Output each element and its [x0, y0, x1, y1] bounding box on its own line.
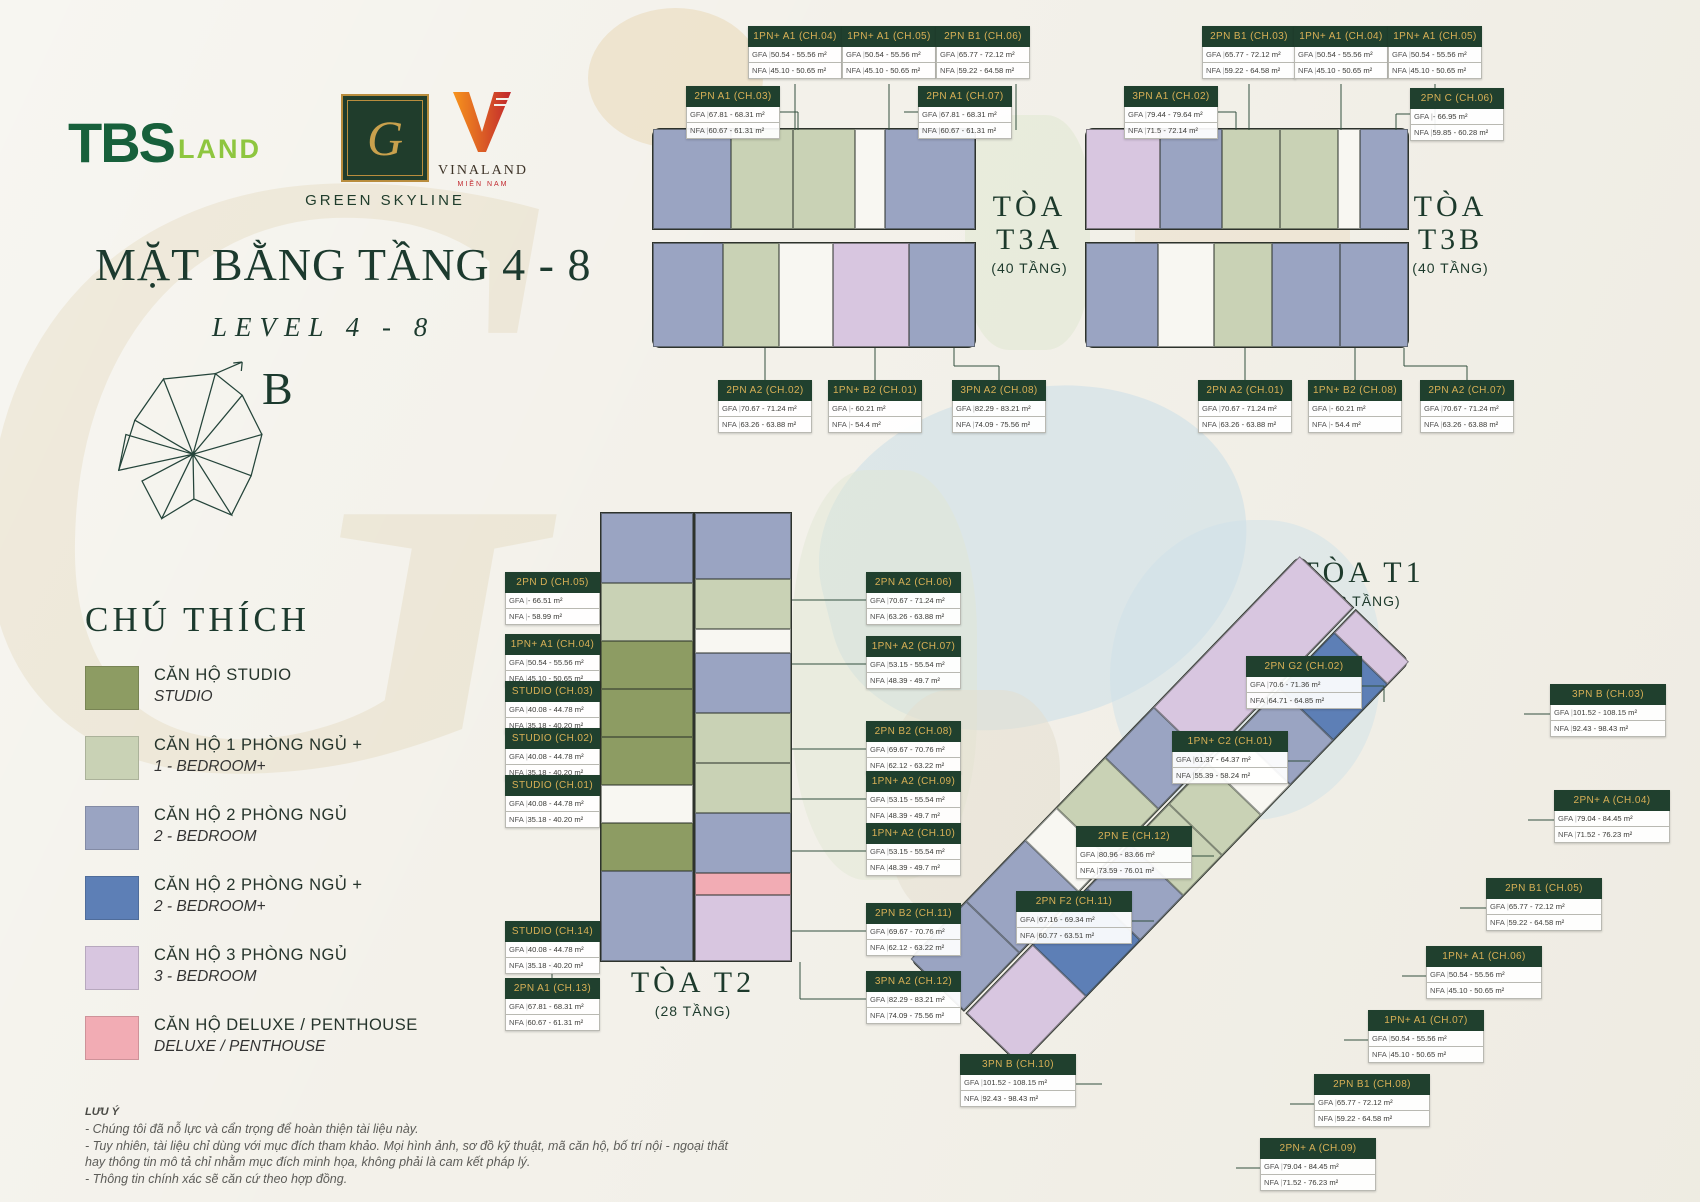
area-label: GFA: [1318, 1098, 1337, 1107]
green-skyline-label: GREEN SKYLINE: [300, 192, 470, 209]
unit-code: 2PN A1 (CH.07): [918, 86, 1012, 107]
unit-nfa-row: NFA59.22 - 64.58 m²: [936, 63, 1030, 79]
unit-gfa-row: GFA- 60.21 m²: [1308, 401, 1402, 417]
unit-nfa-row: NFA73.59 - 76.01 m²: [1076, 863, 1192, 879]
unit-badge: 2PN D (CH.05)GFA- 66.51 m²NFA- 58.99 m²: [505, 572, 600, 625]
unit-badge: STUDIO (CH.14)GFA40.08 - 44.78 m²NFA35.1…: [505, 921, 600, 974]
area-label: NFA: [870, 811, 888, 820]
unit-code: 1PN+ A1 (CH.07): [1368, 1010, 1484, 1031]
area-label: NFA: [752, 66, 770, 75]
unit-badge: 2PN B2 (CH.11)GFA69.67 - 70.76 m²NFA62.1…: [866, 903, 961, 956]
legend-label-en: 2 - BEDROOM+: [154, 898, 363, 916]
plan-unit-br1: [695, 713, 791, 763]
plan-unit-br2: [653, 129, 731, 229]
plan-unit-br1: [793, 129, 855, 229]
vinaland-v-icon: [451, 92, 515, 152]
legend-label-vi: CĂN HỘ DELUXE / PENTHOUSE: [154, 1016, 418, 1035]
area-label: NFA: [832, 420, 850, 429]
unit-nfa-row: NFA71.5 - 72.14 m²: [1124, 123, 1218, 139]
unit-code: 3PN B (CH.03): [1550, 684, 1666, 705]
unit-gfa-row: GFA50.54 - 55.56 m²: [748, 47, 842, 63]
area-label: NFA: [690, 126, 708, 135]
unit-code: 1PN+ A1 (CH.05): [842, 26, 936, 47]
plan-unit-br2: [1272, 243, 1340, 347]
area-label: GFA: [1298, 50, 1317, 59]
unit-gfa-row: GFA- 66.95 m²: [1410, 109, 1504, 125]
area-label: NFA: [1312, 420, 1330, 429]
legend-label-en: STUDIO: [154, 688, 292, 706]
area-value: 70.6 - 71.36 m²: [1269, 680, 1321, 689]
plan-unit-br2: [601, 871, 693, 961]
unit-nfa-row: NFA59.22 - 64.58 m²: [1314, 1111, 1430, 1127]
unit-badge: 1PN+ A2 (CH.07)GFA53.15 - 55.54 m²NFA48.…: [866, 636, 961, 689]
area-label: NFA: [870, 943, 888, 952]
plan-unit-studio: [601, 737, 693, 785]
unit-nfa-row: NFA92.43 - 98.43 m²: [1550, 721, 1666, 737]
area-value: 59.85 - 60.28 m²: [1432, 128, 1488, 137]
area-value: 45.10 - 50.65 m²: [1390, 1050, 1446, 1059]
area-value: - 66.51 m²: [528, 596, 563, 605]
area-value: 45.10 - 50.65 m²: [1316, 66, 1372, 75]
legend-item: CĂN HỘ 2 PHÒNG NGỦ2 - BEDROOM: [85, 806, 445, 850]
unit-gfa-row: GFA40.08 - 44.78 m²: [505, 749, 600, 765]
area-label: NFA: [1558, 830, 1576, 839]
unit-badge: 2PN A2 (CH.01)GFA70.67 - 71.24 m²NFA63.2…: [1198, 380, 1292, 433]
vinaland-label: VINALAND: [428, 163, 538, 179]
plan-unit-studio: [601, 641, 693, 689]
unit-nfa-row: NFA55.39 - 58.24 m²: [1172, 768, 1288, 784]
legend-item: CĂN HỘ 1 PHÒNG NGỦ +1 - BEDROOM+: [85, 736, 445, 780]
legend-item: CĂN HỘ STUDIOSTUDIO: [85, 666, 445, 710]
unit-badge: 1PN+ B2 (CH.01)GFA- 60.21 m²NFA- 54.4 m²: [828, 380, 922, 433]
unit-badge: 2PN B1 (CH.06)GFA65.77 - 72.12 m²NFA59.2…: [936, 26, 1030, 79]
tower-plan-t3b: [1085, 128, 1409, 348]
area-value: 74.09 - 75.56 m²: [888, 1011, 944, 1020]
unit-code: 1PN+ A2 (CH.07): [866, 636, 961, 657]
unit-code: 2PN+ A (CH.09): [1260, 1138, 1376, 1159]
area-value: 92.43 - 98.43 m²: [1572, 724, 1628, 733]
plan-unit-br2: [695, 813, 791, 873]
area-value: 61.37 - 64.37 m²: [1195, 755, 1251, 764]
unit-nfa-row: NFA35.18 - 40.20 m²: [505, 958, 600, 974]
unit-nfa-row: NFA- 58.99 m²: [505, 609, 600, 625]
area-value: - 60.21 m²: [851, 404, 886, 413]
area-label: GFA: [870, 660, 889, 669]
plan-unit-br1: [723, 243, 779, 347]
unit-badge: 2PN C (CH.06)GFA- 66.95 m²NFA59.85 - 60.…: [1410, 88, 1504, 141]
area-label: GFA: [1392, 50, 1411, 59]
area-value: 67.81 - 68.31 m²: [709, 110, 765, 119]
unit-gfa-row: GFA50.54 - 55.56 m²: [1426, 967, 1542, 983]
plan-unit-br3: [695, 895, 791, 961]
unit-nfa-row: NFA59.22 - 64.58 m²: [1486, 915, 1602, 931]
unit-badge: 1PN+ A1 (CH.04)GFA50.54 - 55.56 m²NFA45.…: [748, 26, 842, 79]
unit-badge: 2PN G2 (CH.02)GFA70.6 - 71.36 m²NFA64.71…: [1246, 656, 1362, 709]
legend-label-vi: CĂN HỘ 1 PHÒNG NGỦ +: [154, 736, 363, 755]
area-label: GFA: [752, 50, 771, 59]
logo-tbs-text: TBS: [68, 118, 174, 168]
unit-gfa-row: GFA- 66.51 m²: [505, 593, 600, 609]
area-value: 62.12 - 63.22 m²: [888, 761, 944, 770]
area-label: NFA: [1206, 66, 1224, 75]
area-value: 70.67 - 71.24 m²: [889, 596, 945, 605]
unit-code: 1PN+ C2 (CH.01): [1172, 731, 1288, 752]
unit-code: 2PN G2 (CH.02): [1246, 656, 1362, 677]
logo-land-text: LAND: [178, 134, 261, 168]
area-label: NFA: [1430, 986, 1448, 995]
page-title: MẶT BẰNG TẦNG 4 - 8: [95, 238, 591, 291]
unit-gfa-row: GFA50.54 - 55.56 m²: [1368, 1031, 1484, 1047]
unit-gfa-row: GFA40.08 - 44.78 m²: [505, 942, 600, 958]
unit-nfa-row: NFA45.10 - 50.65 m²: [748, 63, 842, 79]
area-label: NFA: [940, 66, 958, 75]
area-value: 45.10 - 50.65 m²: [1448, 986, 1504, 995]
area-value: 69.67 - 70.76 m²: [889, 745, 945, 754]
unit-gfa-row: GFA65.77 - 72.12 m²: [1314, 1095, 1430, 1111]
unit-code: 2PN B1 (CH.03): [1202, 26, 1296, 47]
unit-code: 1PN+ A1 (CH.04): [1294, 26, 1388, 47]
unit-code: 3PN B (CH.10): [960, 1054, 1076, 1075]
unit-code: 2PN B1 (CH.06): [936, 26, 1030, 47]
unit-code: STUDIO (CH.03): [505, 681, 600, 702]
unit-badge: 2PN E (CH.12)GFA80.96 - 83.66 m²NFA73.59…: [1076, 826, 1192, 879]
unit-code: 2PN A1 (CH.13): [505, 978, 600, 999]
unit-nfa-row: NFA62.12 - 63.22 m²: [866, 940, 961, 956]
unit-gfa-row: GFA50.54 - 55.56 m²: [842, 47, 936, 63]
notes-title: LƯU Ý: [85, 1106, 745, 1118]
legend-swatch: [85, 806, 139, 850]
area-value: 53.15 - 55.54 m²: [889, 795, 945, 804]
unit-gfa-row: GFA61.37 - 64.37 m²: [1172, 752, 1288, 768]
unit-badge: 2PN A1 (CH.03)GFA67.81 - 68.31 m²NFA60.6…: [686, 86, 780, 139]
unit-gfa-row: GFA69.67 - 70.76 m²: [866, 924, 961, 940]
legend-item: CĂN HỘ DELUXE / PENTHOUSEDELUXE / PENTHO…: [85, 1016, 445, 1060]
area-label: GFA: [1264, 1162, 1283, 1171]
unit-code: 2PN A2 (CH.01): [1198, 380, 1292, 401]
plan-unit-br2: [885, 129, 975, 229]
area-label: GFA: [1490, 902, 1509, 911]
area-label: NFA: [1424, 420, 1442, 429]
unit-code: 1PN+ A1 (CH.04): [505, 634, 600, 655]
area-label: GFA: [1430, 970, 1449, 979]
legend-label-vi: CĂN HỘ 3 PHÒNG NGỦ: [154, 946, 347, 965]
legend-label-en: 1 - BEDROOM+: [154, 758, 363, 776]
unit-badge: 2PN B2 (CH.08)GFA69.67 - 70.76 m²NFA62.1…: [866, 721, 961, 774]
area-value: 70.67 - 71.24 m²: [1221, 404, 1277, 413]
unit-badge: 1PN+ A2 (CH.10)GFA53.15 - 55.54 m²NFA48.…: [866, 823, 961, 876]
unit-gfa-row: GFA70.67 - 71.24 m²: [1420, 401, 1514, 417]
area-label: GFA: [870, 927, 889, 936]
area-label: NFA: [1372, 1050, 1390, 1059]
area-value: 45.10 - 50.65 m²: [864, 66, 920, 75]
unit-gfa-row: GFA65.77 - 72.12 m²: [936, 47, 1030, 63]
unit-nfa-row: NFA71.52 - 76.23 m²: [1260, 1175, 1376, 1191]
unit-gfa-row: GFA101.52 - 108.15 m²: [960, 1075, 1076, 1091]
tower-label-t2: TÒA T2(28 TẦNG): [618, 966, 768, 1019]
area-label: NFA: [1080, 866, 1098, 875]
unit-nfa-row: NFA45.10 - 50.65 m²: [842, 63, 936, 79]
compass-label: B: [262, 362, 293, 415]
area-value: 48.39 - 49.7 m²: [888, 863, 940, 872]
unit-code: 3PN A2 (CH.08): [952, 380, 1046, 401]
area-value: - 58.99 m²: [527, 612, 562, 621]
area-value: 64.71 - 64.85 m²: [1268, 696, 1324, 705]
area-value: 59.22 - 64.58 m²: [1336, 1114, 1392, 1123]
legend-item: CĂN HỘ 3 PHÒNG NGỦ3 - BEDROOM: [85, 946, 445, 990]
unit-gfa-row: GFA101.52 - 108.15 m²: [1550, 705, 1666, 721]
area-value: 63.26 - 63.88 m²: [1220, 420, 1276, 429]
area-value: 50.54 - 55.56 m²: [865, 50, 921, 59]
unit-badge: 3PN B (CH.10)GFA101.52 - 108.15 m²NFA92.…: [960, 1054, 1076, 1107]
unit-gfa-row: GFA79.04 - 84.45 m²: [1554, 811, 1670, 827]
area-label: GFA: [870, 596, 889, 605]
area-value: 60.77 - 63.51 m²: [1038, 931, 1094, 940]
unit-nfa-row: NFA64.71 - 64.85 m²: [1246, 693, 1362, 709]
area-label: GFA: [870, 745, 889, 754]
unit-gfa-row: GFA67.16 - 69.34 m²: [1016, 912, 1132, 928]
page-subtitle: LEVEL 4 - 8: [212, 312, 435, 343]
unit-nfa-row: NFA74.09 - 75.56 m²: [866, 1008, 961, 1024]
area-value: 48.39 - 49.7 m²: [888, 811, 940, 820]
unit-badge: 1PN+ A1 (CH.06)GFA50.54 - 55.56 m²NFA45.…: [1426, 946, 1542, 999]
area-label: NFA: [509, 1018, 527, 1027]
plan-unit-br3: [833, 243, 909, 347]
unit-code: 1PN+ A2 (CH.10): [866, 823, 961, 844]
area-value: 69.67 - 70.76 m²: [889, 927, 945, 936]
area-value: 63.26 - 63.88 m²: [888, 612, 944, 621]
area-value: 82.29 - 83.21 m²: [975, 404, 1031, 413]
area-value: 67.81 - 68.31 m²: [941, 110, 997, 119]
unit-code: 2PN B1 (CH.05): [1486, 878, 1602, 899]
unit-code: 2PN A1 (CH.03): [686, 86, 780, 107]
plan-unit-br1: [601, 583, 693, 641]
area-label: NFA: [846, 66, 864, 75]
area-label: NFA: [1554, 724, 1572, 733]
area-label: NFA: [1392, 66, 1410, 75]
area-label: GFA: [509, 945, 528, 954]
area-label: GFA: [509, 752, 528, 761]
unit-code: 2PN A2 (CH.07): [1420, 380, 1514, 401]
unit-gfa-row: GFA70.67 - 71.24 m²: [1198, 401, 1292, 417]
unit-gfa-row: GFA53.15 - 55.54 m²: [866, 792, 961, 808]
area-value: 67.81 - 68.31 m²: [528, 1002, 584, 1011]
unit-nfa-row: NFA45.10 - 50.65 m²: [1368, 1047, 1484, 1063]
unit-gfa-row: GFA70.67 - 71.24 m²: [718, 401, 812, 417]
unit-code: 2PN A2 (CH.06): [866, 572, 961, 593]
area-value: 101.52 - 108.15 m²: [983, 1078, 1047, 1087]
unit-nfa-row: NFA63.26 - 63.88 m²: [718, 417, 812, 433]
area-label: GFA: [870, 795, 889, 804]
area-value: 101.52 - 108.15 m²: [1573, 708, 1637, 717]
unit-gfa-row: GFA53.15 - 55.54 m²: [866, 657, 961, 673]
area-value: 40.08 - 44.78 m²: [528, 705, 584, 714]
area-label: GFA: [509, 1002, 528, 1011]
area-label: NFA: [509, 815, 527, 824]
unit-badge: 2PN A2 (CH.07)GFA70.67 - 71.24 m²NFA63.2…: [1420, 380, 1514, 433]
area-value: 71.52 - 76.23 m²: [1282, 1178, 1338, 1187]
area-label: GFA: [509, 658, 528, 667]
area-label: GFA: [722, 404, 741, 413]
area-value: 71.52 - 76.23 m²: [1576, 830, 1632, 839]
area-label: GFA: [870, 847, 889, 856]
unit-code: 1PN+ A1 (CH.06): [1426, 946, 1542, 967]
area-label: NFA: [870, 1011, 888, 1020]
legend-label-en: 3 - BEDROOM: [154, 968, 347, 986]
unit-gfa-row: GFA67.81 - 68.31 m²: [505, 999, 600, 1015]
area-value: 63.26 - 63.88 m²: [740, 420, 796, 429]
plan-unit-br1: [1222, 129, 1280, 229]
unit-nfa-row: NFA63.26 - 63.88 m²: [1198, 417, 1292, 433]
unit-nfa-row: NFA45.10 - 50.65 m²: [1426, 983, 1542, 999]
unit-nfa-row: NFA60.67 - 61.31 m²: [918, 123, 1012, 139]
unit-code: 2PN D (CH.05): [505, 572, 600, 593]
legend-swatch: [85, 946, 139, 990]
unit-gfa-row: GFA65.77 - 72.12 m²: [1202, 47, 1296, 63]
unit-code: 2PN+ A (CH.04): [1554, 790, 1670, 811]
area-label: NFA: [922, 126, 940, 135]
area-label: GFA: [1372, 1034, 1391, 1043]
unit-gfa-row: GFA- 60.21 m²: [828, 401, 922, 417]
unit-gfa-row: GFA67.81 - 68.31 m²: [918, 107, 1012, 123]
area-value: 45.10 - 50.65 m²: [1410, 66, 1466, 75]
unit-gfa-row: GFA82.29 - 83.21 m²: [952, 401, 1046, 417]
area-value: 65.77 - 72.12 m²: [1337, 1098, 1393, 1107]
area-label: GFA: [1554, 708, 1573, 717]
area-label: GFA: [1558, 814, 1577, 823]
area-value: 50.54 - 55.56 m²: [1411, 50, 1467, 59]
area-value: 59.22 - 64.58 m²: [1224, 66, 1280, 75]
area-label: NFA: [1128, 126, 1146, 135]
legend-label-en: 2 - BEDROOM: [154, 828, 347, 846]
unit-code: 3PN A2 (CH.12): [866, 971, 961, 992]
unit-code: 1PN+ B2 (CH.08): [1308, 380, 1402, 401]
note-line: - Thông tin chính xác sẽ căn cứ theo hợp…: [85, 1171, 745, 1188]
plan-unit-br2: [909, 243, 975, 347]
unit-badge: 1PN+ A1 (CH.04)GFA50.54 - 55.56 m²NFA45.…: [1294, 26, 1388, 79]
legend-swatch: [85, 736, 139, 780]
plan-unit-br1: [731, 129, 793, 229]
tower-label-t3b: TÒA T3B(40 TẦNG): [1403, 190, 1498, 276]
plan-unit-br3: [1086, 129, 1160, 229]
unit-code: 2PN C (CH.06): [1410, 88, 1504, 109]
unit-gfa-row: GFA70.6 - 71.36 m²: [1246, 677, 1362, 693]
area-value: 79.44 - 79.64 m²: [1147, 110, 1203, 119]
area-value: 50.54 - 55.56 m²: [1391, 1034, 1447, 1043]
area-label: NFA: [870, 863, 888, 872]
area-value: - 66.95 m²: [1433, 112, 1468, 121]
unit-gfa-row: GFA79.04 - 84.45 m²: [1260, 1159, 1376, 1175]
unit-badge: 1PN+ B2 (CH.08)GFA- 60.21 m²NFA- 54.4 m²: [1308, 380, 1402, 433]
area-value: 70.67 - 71.24 m²: [1443, 404, 1499, 413]
area-value: - 54.4 m²: [850, 420, 880, 429]
area-value: 65.77 - 72.12 m²: [1225, 50, 1281, 59]
area-label: NFA: [1250, 696, 1268, 705]
area-value: 50.54 - 55.56 m²: [1317, 50, 1373, 59]
unit-badge: 3PN B (CH.03)GFA101.52 - 108.15 m²NFA92.…: [1550, 684, 1666, 737]
legend-item: CĂN HỘ 2 PHÒNG NGỦ +2 - BEDROOM+: [85, 876, 445, 920]
area-value: 60.67 - 61.31 m²: [940, 126, 996, 135]
area-value: 35.18 - 40.20 m²: [527, 815, 583, 824]
unit-badge: 2PN A1 (CH.07)GFA67.81 - 68.31 m²NFA60.6…: [918, 86, 1012, 139]
unit-badge: 2PN F2 (CH.11)GFA67.16 - 69.34 m²NFA60.7…: [1016, 891, 1132, 944]
plan-unit-br1: [1214, 243, 1272, 347]
compass-icon: [108, 360, 278, 540]
unit-badge: 2PN B1 (CH.08)GFA65.77 - 72.12 m²NFA59.2…: [1314, 1074, 1430, 1127]
unit-badge: 1PN+ C2 (CH.01)GFA61.37 - 64.37 m²NFA55.…: [1172, 731, 1288, 784]
area-value: 35.18 - 40.20 m²: [527, 961, 583, 970]
unit-nfa-row: NFA60.67 - 61.31 m²: [686, 123, 780, 139]
unit-gfa-row: GFA82.29 - 83.21 m²: [866, 992, 961, 1008]
unit-nfa-row: NFA59.85 - 60.28 m²: [1410, 125, 1504, 141]
area-label: NFA: [1414, 128, 1432, 137]
unit-code: 2PN B2 (CH.08): [866, 721, 961, 742]
tower-plan-t3a: [652, 128, 976, 348]
unit-nfa-row: NFA45.10 - 50.65 m²: [1388, 63, 1482, 79]
plan-unit-core: [601, 785, 693, 823]
area-value: 59.22 - 64.58 m²: [1508, 918, 1564, 927]
area-value: 50.54 - 55.56 m²: [771, 50, 827, 59]
area-label: GFA: [846, 50, 865, 59]
area-label: NFA: [870, 761, 888, 770]
area-label: GFA: [1080, 850, 1099, 859]
unit-nfa-row: NFA59.22 - 64.58 m²: [1202, 63, 1296, 79]
plan-unit-br2: [1086, 243, 1158, 347]
area-label: NFA: [964, 1094, 982, 1103]
area-value: 73.59 - 76.01 m²: [1098, 866, 1154, 875]
unit-badge: 2PN A2 (CH.02)GFA70.67 - 71.24 m²NFA63.2…: [718, 380, 812, 433]
unit-gfa-row: GFA65.77 - 72.12 m²: [1486, 899, 1602, 915]
unit-nfa-row: NFA74.09 - 75.56 m²: [952, 417, 1046, 433]
unit-badge: 1PN+ A2 (CH.09)GFA53.15 - 55.54 m²NFA48.…: [866, 771, 961, 824]
area-label: NFA: [1264, 1178, 1282, 1187]
unit-nfa-row: NFA60.77 - 63.51 m²: [1016, 928, 1132, 944]
unit-nfa-row: NFA63.26 - 63.88 m²: [1420, 417, 1514, 433]
area-label: NFA: [1020, 931, 1038, 940]
area-value: 74.09 - 75.56 m²: [974, 420, 1030, 429]
unit-gfa-row: GFA53.15 - 55.54 m²: [866, 844, 961, 860]
logo-tbs-land: TBS LAND: [68, 118, 261, 168]
unit-badge: 2PN+ A (CH.04)GFA79.04 - 84.45 m²NFA71.5…: [1554, 790, 1670, 843]
unit-code: STUDIO (CH.02): [505, 728, 600, 749]
unit-code: 1PN+ A1 (CH.04): [748, 26, 842, 47]
unit-badge: 2PN B1 (CH.03)GFA65.77 - 72.12 m²NFA59.2…: [1202, 26, 1296, 79]
plan-unit-deluxe: [695, 873, 791, 895]
plan-unit-br2: [1160, 129, 1222, 229]
unit-code: 1PN+ B2 (CH.01): [828, 380, 922, 401]
unit-nfa-row: NFA60.67 - 61.31 m²: [505, 1015, 600, 1031]
unit-gfa-row: GFA79.44 - 79.64 m²: [1124, 107, 1218, 123]
tower-plan-t1: [909, 555, 1410, 1066]
area-label: GFA: [964, 1078, 983, 1087]
unit-nfa-row: NFA45.10 - 50.65 m²: [1294, 63, 1388, 79]
unit-badge: 3PN A2 (CH.12)GFA82.29 - 83.21 m²NFA74.0…: [866, 971, 961, 1024]
area-label: NFA: [956, 420, 974, 429]
area-label: NFA: [1298, 66, 1316, 75]
area-value: 50.54 - 55.56 m²: [528, 658, 584, 667]
unit-gfa-row: GFA40.08 - 44.78 m²: [505, 796, 600, 812]
legend: CHÚ THÍCH CĂN HỘ STUDIOSTUDIOCĂN HỘ 1 PH…: [85, 600, 445, 1086]
area-label: GFA: [509, 799, 528, 808]
area-label: NFA: [1318, 1114, 1336, 1123]
area-label: GFA: [1202, 404, 1221, 413]
plan-unit-br1: [1280, 129, 1338, 229]
area-label: GFA: [832, 404, 851, 413]
area-label: GFA: [870, 995, 889, 1004]
green-skyline-monogram-icon: G: [341, 94, 429, 182]
plan-unit-br2: [601, 513, 693, 583]
area-value: 55.39 - 58.24 m²: [1194, 771, 1250, 780]
area-value: 40.08 - 44.78 m²: [528, 945, 584, 954]
